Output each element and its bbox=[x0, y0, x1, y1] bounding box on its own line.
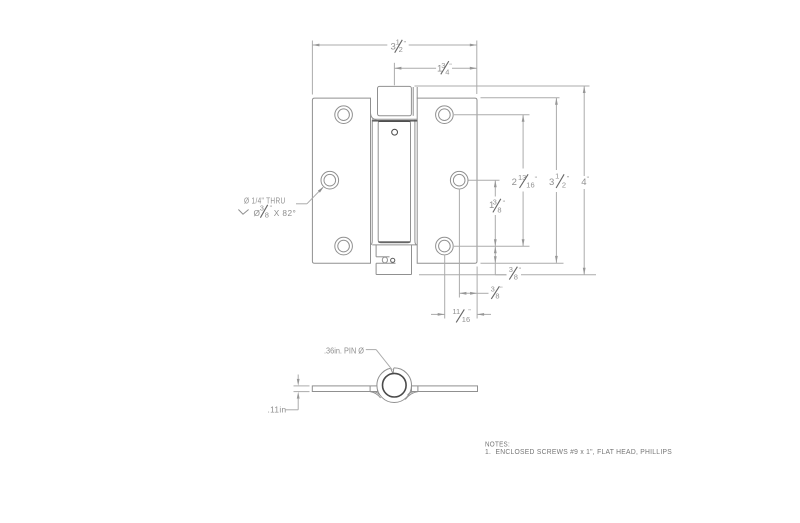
svg-text:X 82°: X 82° bbox=[274, 208, 296, 218]
svg-text:3: 3 bbox=[491, 285, 495, 294]
svg-text:.11in: .11in bbox=[268, 405, 287, 415]
svg-text:2: 2 bbox=[562, 180, 566, 189]
svg-text:8: 8 bbox=[514, 272, 518, 281]
svg-text:3: 3 bbox=[509, 265, 513, 274]
svg-text:16: 16 bbox=[526, 180, 534, 189]
svg-text:3: 3 bbox=[493, 198, 497, 207]
svg-text:8: 8 bbox=[265, 211, 269, 220]
svg-text:8: 8 bbox=[495, 291, 499, 300]
svg-text:3: 3 bbox=[549, 177, 554, 188]
svg-text:13: 13 bbox=[518, 173, 526, 182]
svg-text:1. ENCLOSED SCREWS #9 x 1", F: 1. ENCLOSED SCREWS #9 x 1", FLAT HEAD, P… bbox=[485, 447, 672, 456]
svg-text:1: 1 bbox=[555, 172, 559, 181]
svg-text:2: 2 bbox=[512, 177, 517, 188]
svg-text:Ø 1/4" THRU: Ø 1/4" THRU bbox=[244, 195, 286, 205]
svg-text:3: 3 bbox=[260, 204, 264, 213]
svg-text:11: 11 bbox=[452, 307, 460, 316]
svg-text:.36in. PIN Ø: .36in. PIN Ø bbox=[324, 346, 364, 355]
svg-text:16: 16 bbox=[462, 315, 470, 324]
svg-text:8: 8 bbox=[497, 205, 501, 214]
svg-text:2: 2 bbox=[399, 45, 403, 54]
